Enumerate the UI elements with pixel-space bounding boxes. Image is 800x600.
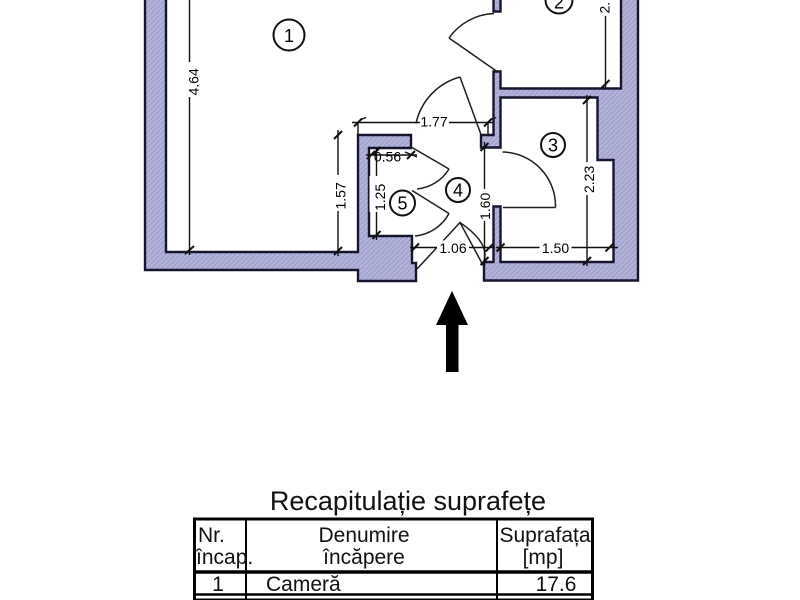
svg-text:Denumire: Denumire xyxy=(318,524,409,547)
svg-text:încap.: încap. xyxy=(195,546,253,569)
svg-text:1.77: 1.77 xyxy=(420,114,447,130)
svg-text:Cameră: Cameră xyxy=(266,573,341,596)
svg-text:1: 1 xyxy=(212,573,224,596)
svg-text:Suprafața: Suprafața xyxy=(499,524,590,547)
svg-text:4: 4 xyxy=(453,181,463,201)
svg-text:Nr.: Nr. xyxy=(198,524,225,547)
svg-text:17.6: 17.6 xyxy=(536,573,577,596)
svg-text:5: 5 xyxy=(397,194,407,214)
svg-text:1.06: 1.06 xyxy=(439,240,466,256)
svg-text:Recapitulație suprafețe: Recapitulație suprafețe xyxy=(270,486,546,516)
svg-text:2.: 2. xyxy=(597,2,613,14)
svg-text:1.60: 1.60 xyxy=(477,193,493,220)
svg-text:3: 3 xyxy=(548,136,558,156)
svg-text:1.25: 1.25 xyxy=(372,184,388,211)
svg-text:2: 2 xyxy=(554,0,564,13)
svg-text:încăpere: încăpere xyxy=(322,546,405,569)
svg-text:4.64: 4.64 xyxy=(186,68,202,95)
svg-text:[mp]: [mp] xyxy=(523,546,564,569)
svg-text:1.57: 1.57 xyxy=(333,182,349,209)
svg-text:2.23: 2.23 xyxy=(581,166,597,193)
svg-text:1: 1 xyxy=(284,26,294,46)
svg-text:1.50: 1.50 xyxy=(542,240,569,256)
